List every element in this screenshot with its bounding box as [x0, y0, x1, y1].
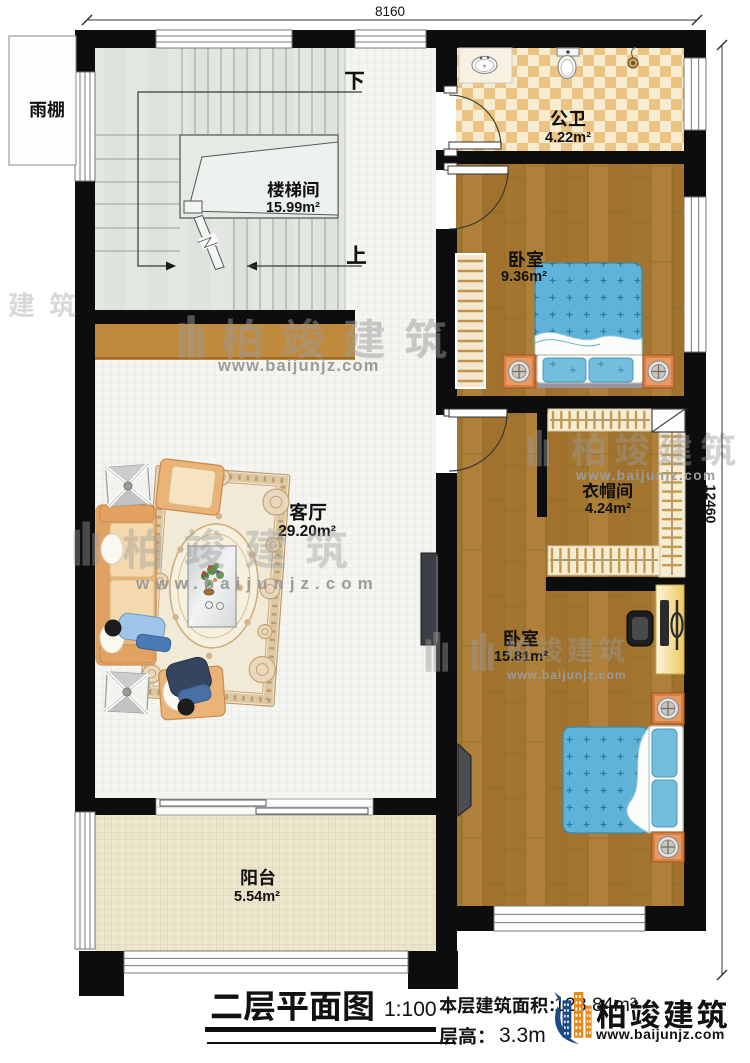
svg-text:www.baijunjz.com: www.baijunjz.com	[217, 357, 380, 375]
svg-text:3.3m: 3.3m	[499, 1024, 546, 1047]
svg-text:www.baijunjz.com: www.baijunjz.com	[506, 668, 627, 682]
svg-text:4.24m²: 4.24m²	[585, 501, 631, 517]
svg-text:9.36m²: 9.36m²	[501, 269, 547, 285]
svg-text:12460: 12460	[703, 485, 719, 524]
svg-text:5.54m²: 5.54m²	[234, 889, 280, 905]
svg-text:1:100: 1:100	[384, 998, 437, 1021]
svg-text:www.baijunjz.com: www.baijunjz.com	[575, 468, 717, 483]
svg-text:www.baijunjz.com: www.baijunjz.com	[135, 574, 379, 593]
svg-text:8160: 8160	[375, 4, 405, 19]
svg-text:4.22m²: 4.22m²	[545, 130, 591, 146]
svg-text:15.99m²: 15.99m²	[266, 200, 320, 216]
svg-text:www.baijunjz.com: www.baijunjz.com	[595, 1026, 725, 1042]
